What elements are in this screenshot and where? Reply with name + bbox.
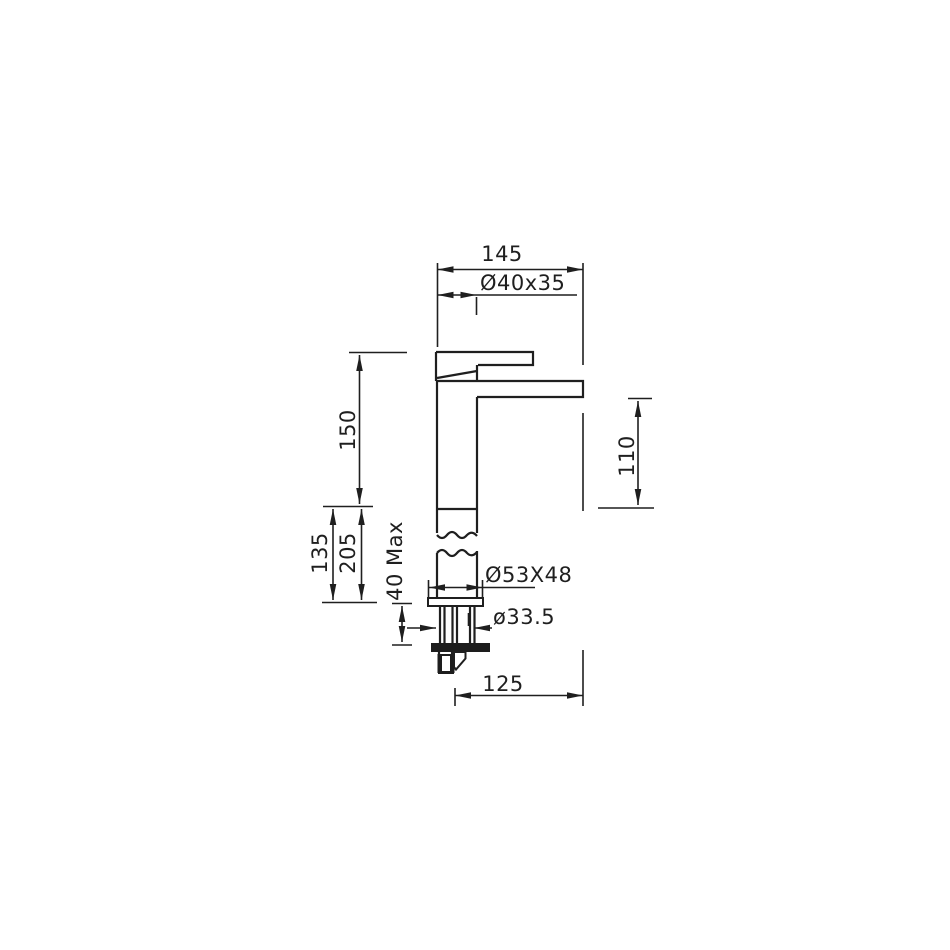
break-line-lower — [437, 550, 477, 556]
dim-label-53x48: Ø53X48 — [485, 563, 572, 587]
base-flange — [428, 598, 483, 606]
dim-145-overall-width: 145 — [438, 242, 584, 706]
shank-pipes — [440, 606, 475, 644]
dim-label-145: 145 — [481, 242, 523, 266]
dim-label-40x35: Ø40x35 — [480, 271, 565, 295]
dim-33p5-shank: ø33.5 — [407, 605, 555, 629]
dim-label-33p5: ø33.5 — [493, 605, 555, 629]
tailpiece-nut — [438, 655, 454, 673]
dim-110-clearance: 110 — [615, 399, 652, 506]
dim-53x48-base: Ø53X48 — [429, 563, 573, 597]
break-line-upper — [437, 532, 477, 538]
dim-40x35-handle: Ø40x35 — [438, 271, 578, 315]
dim-125-reach: 125 — [455, 672, 583, 706]
technical-drawing-canvas: 145 Ø40x35 150 135 205 — [0, 0, 950, 950]
drawing-page: 145 Ø40x35 150 135 205 — [0, 0, 950, 950]
spout — [477, 381, 583, 397]
dim-205-height: 205 — [336, 509, 362, 600]
dim-label-135: 135 — [308, 532, 332, 574]
dim-label-110: 110 — [615, 435, 639, 477]
handle-lever — [436, 352, 533, 365]
cut-pipe-end — [454, 652, 466, 670]
mounting-washer — [431, 643, 490, 652]
dim-label-150: 150 — [336, 409, 360, 451]
dim-135-height: 135 — [308, 509, 333, 600]
dim-label-40max: 40 Max — [383, 521, 407, 601]
dim-40max-deck: 40 Max — [383, 521, 412, 645]
dim-label-205: 205 — [336, 532, 360, 574]
dim-150-height: 150 — [336, 353, 407, 505]
handle-wedge — [437, 371, 477, 378]
dim-label-125: 125 — [482, 672, 524, 696]
